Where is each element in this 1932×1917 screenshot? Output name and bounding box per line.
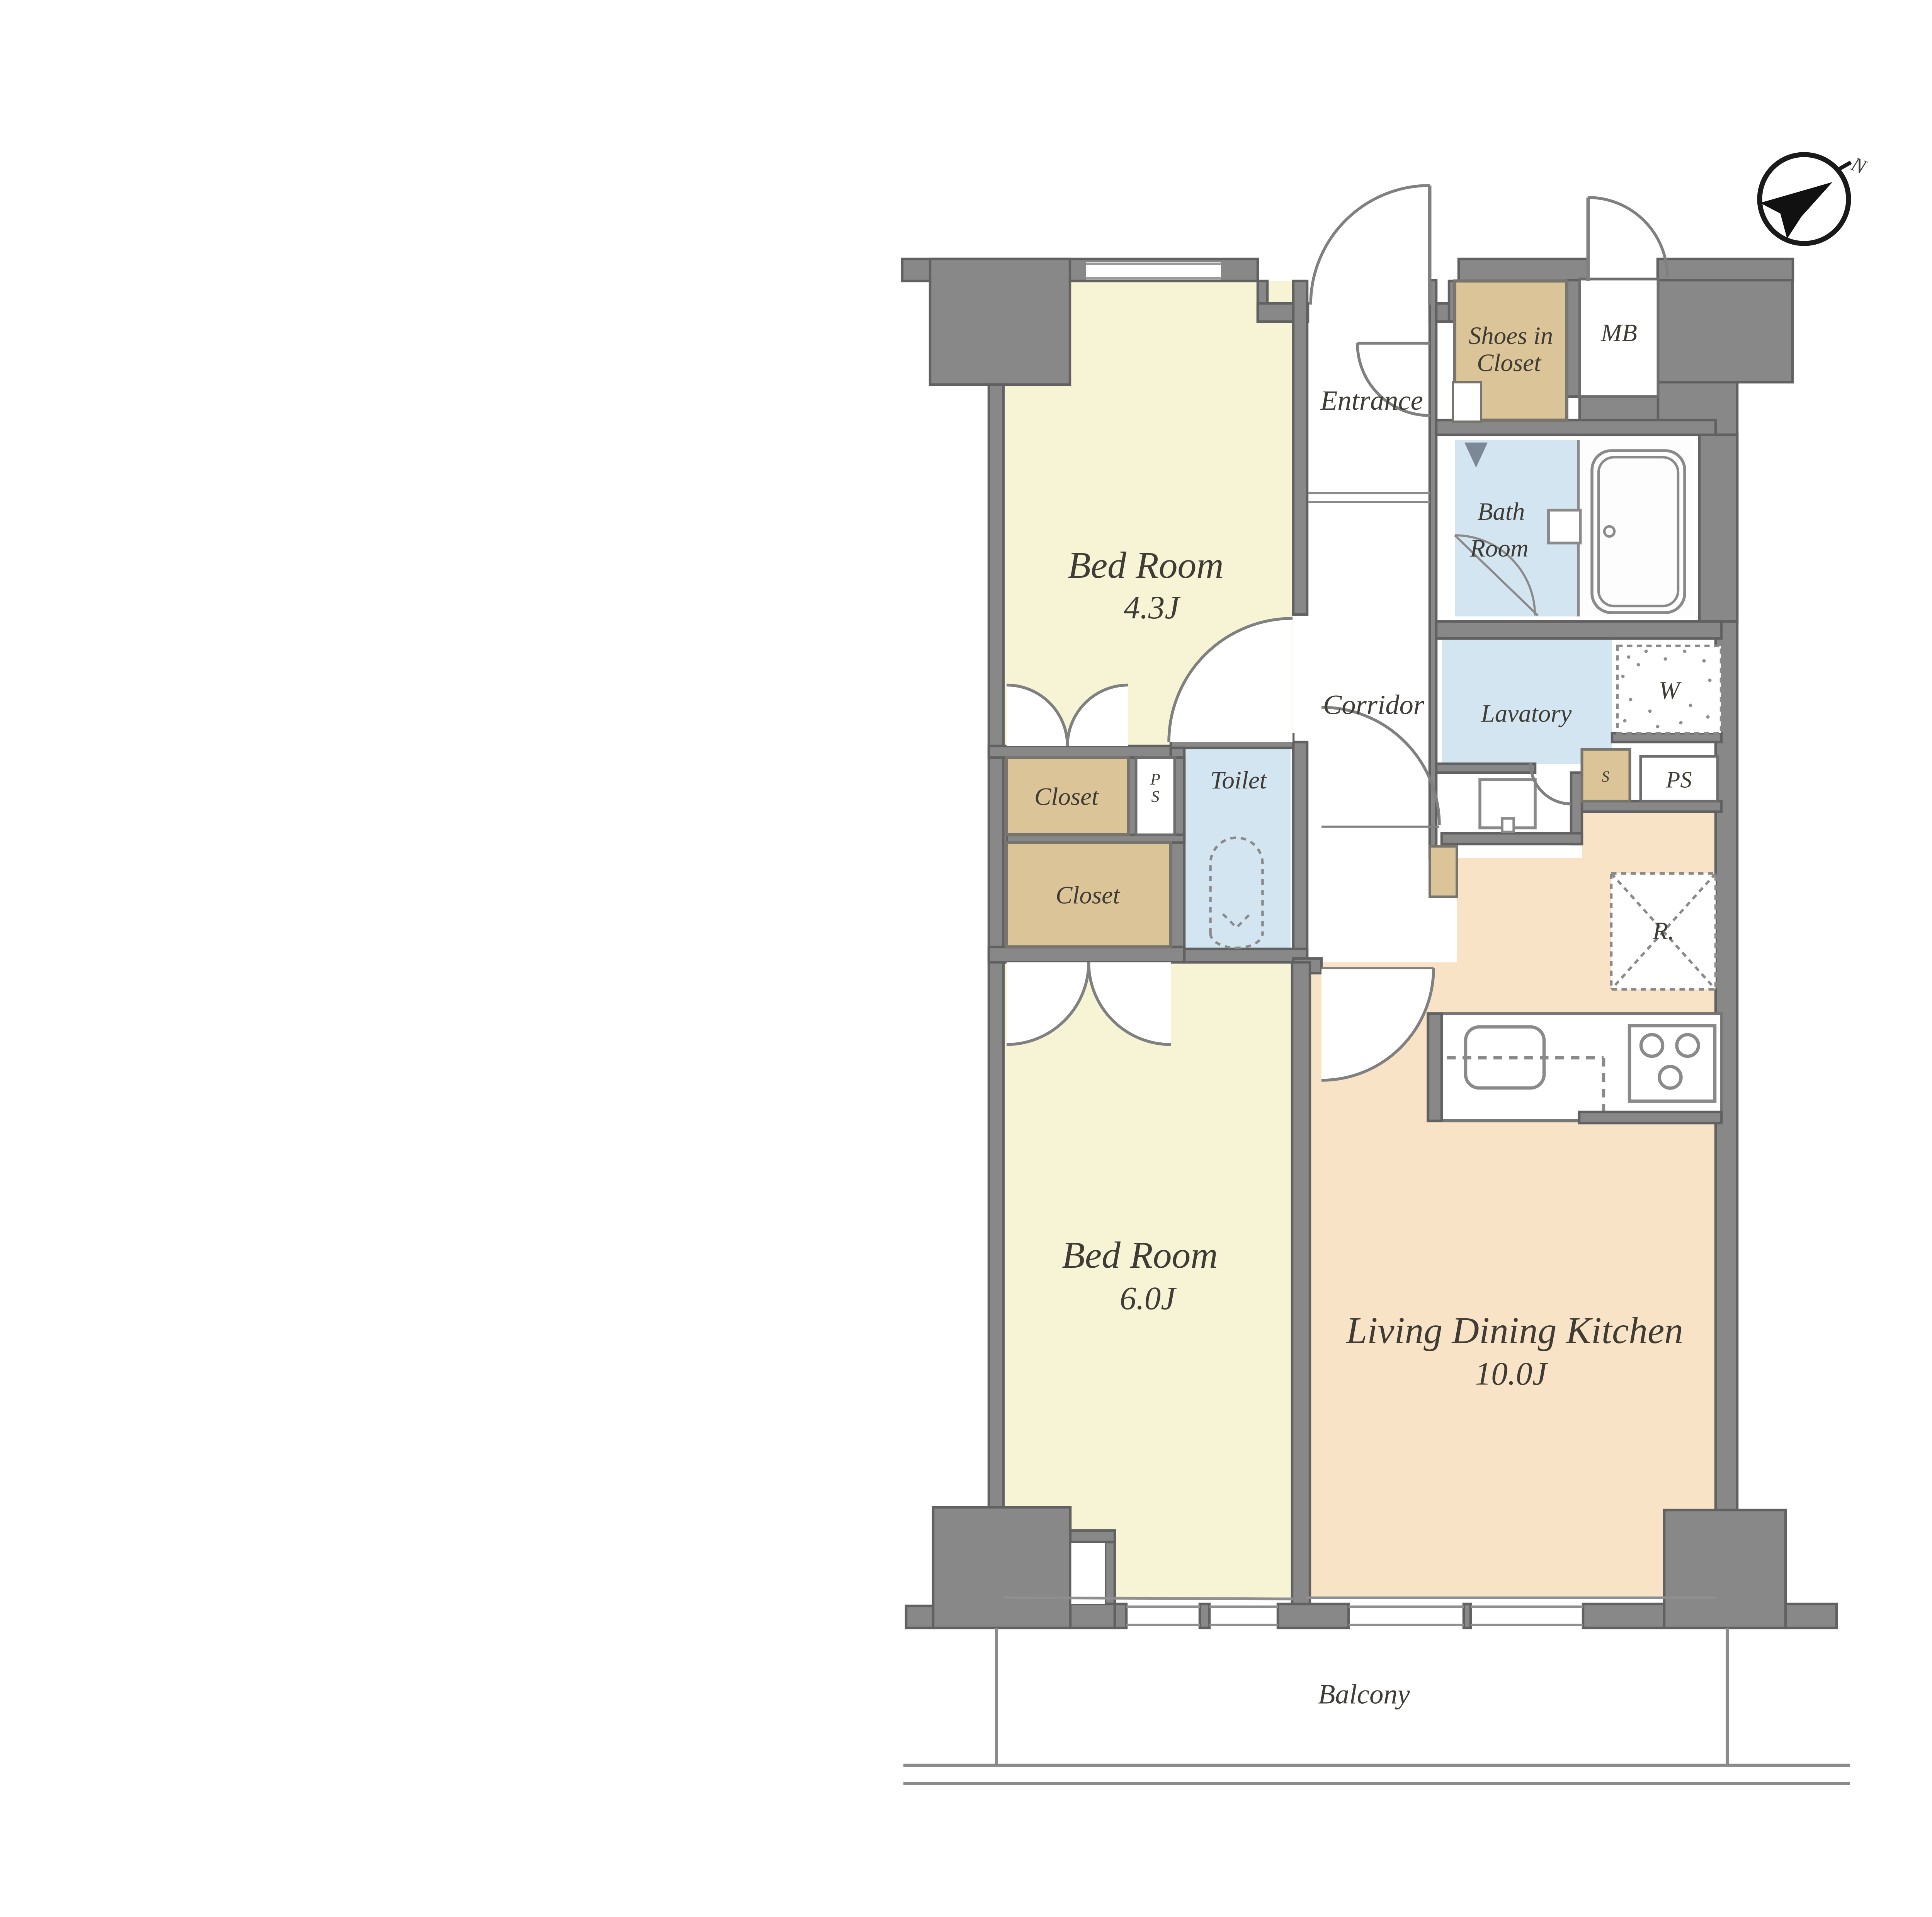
svg-text:P: P: [1150, 770, 1160, 788]
svg-text:PS: PS: [1666, 767, 1692, 793]
svg-text:Bed Room: Bed Room: [1068, 545, 1223, 586]
svg-text:Corridor: Corridor: [1323, 689, 1425, 720]
svg-text:Entrance: Entrance: [1320, 385, 1423, 416]
svg-text:W: W: [1659, 677, 1682, 705]
svg-text:MB: MB: [1600, 319, 1637, 347]
svg-text:Bath: Bath: [1478, 498, 1525, 526]
svg-text:Room: Room: [1469, 535, 1529, 562]
svg-text:Living Dining Kitchen: Living Dining Kitchen: [1345, 1310, 1683, 1352]
svg-text:Balcony: Balcony: [1318, 1679, 1410, 1710]
svg-text:10.0J: 10.0J: [1475, 1356, 1549, 1392]
svg-text:6.0J: 6.0J: [1120, 1280, 1177, 1317]
svg-text:S: S: [1151, 788, 1159, 806]
svg-text:Closet: Closet: [1056, 882, 1121, 909]
svg-text:4.3J: 4.3J: [1124, 589, 1181, 626]
svg-text:Closet: Closet: [1034, 783, 1099, 811]
svg-text:R.: R.: [1652, 917, 1674, 945]
svg-text:S: S: [1602, 768, 1609, 785]
svg-text:Closet: Closet: [1477, 349, 1542, 377]
svg-text:Toilet: Toilet: [1210, 766, 1267, 794]
svg-text:Shoes in: Shoes in: [1469, 322, 1553, 350]
svg-text:Lavatory: Lavatory: [1481, 700, 1572, 728]
svg-text:Bed Room: Bed Room: [1062, 1234, 1218, 1276]
